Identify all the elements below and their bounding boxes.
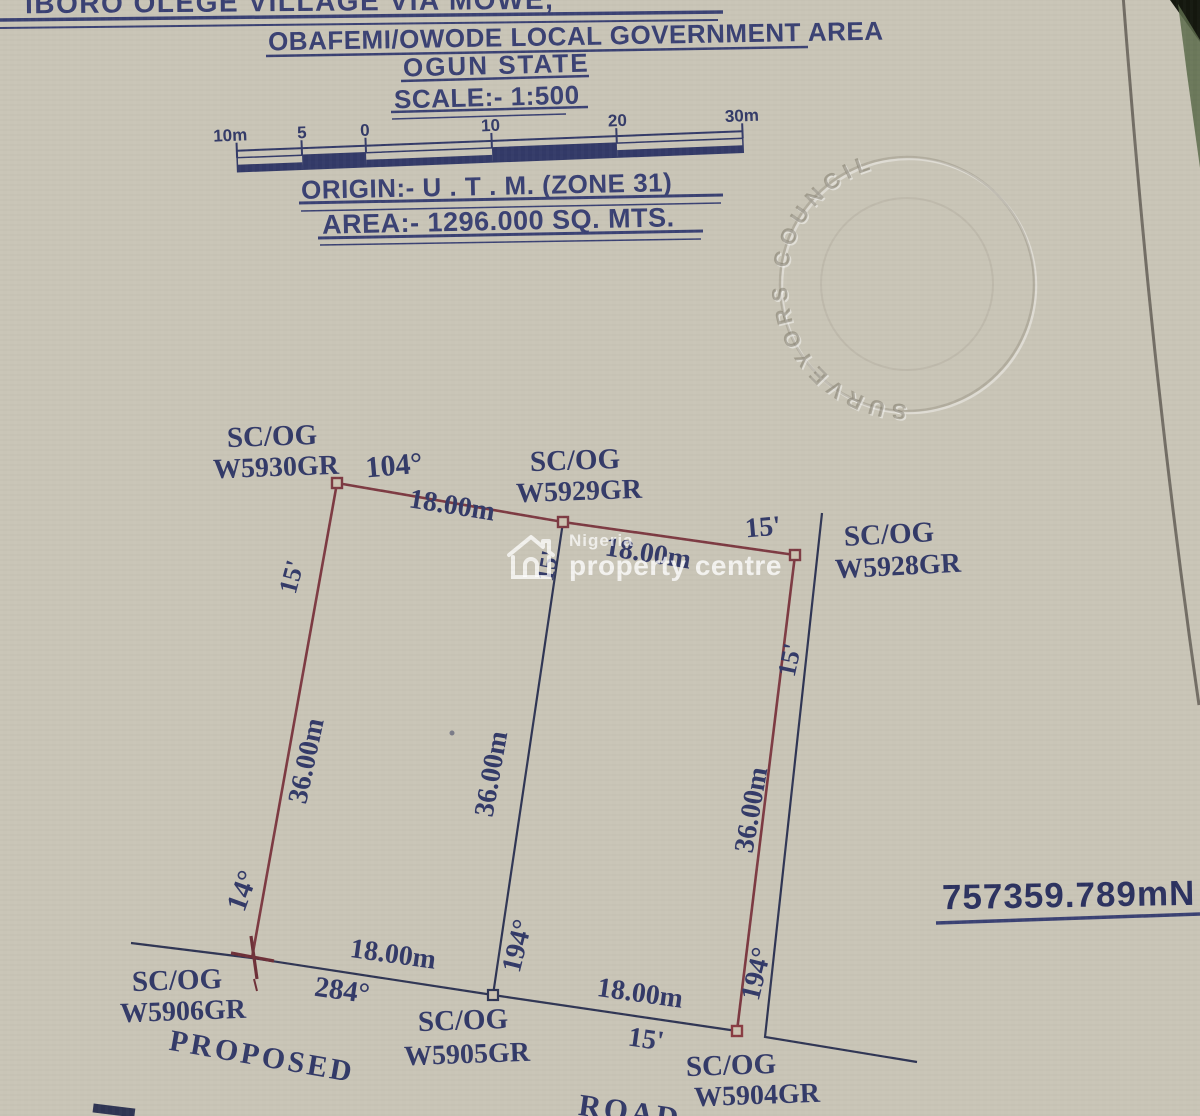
bearing-15min-bottom: 15'	[626, 1022, 666, 1059]
beacon-label-scog-w5906: SC/OG	[131, 963, 222, 999]
cutoff-bottom-mark	[93, 1103, 136, 1116]
beacon-w5905gr	[488, 990, 498, 1000]
angle-104: 104°	[364, 447, 424, 486]
beacon-label-w5928gr: W5928GR	[834, 548, 962, 587]
scale-tick-label-10: 10	[481, 116, 501, 136]
beacon-label-w5905gr: W5905GR	[403, 1037, 530, 1073]
survey-drawing-layer: 10m50102030m SURVEYORS COUNCIL SURVEYORS…	[0, 0, 1200, 1116]
beacon-label-w5929gr: W5929GR	[515, 474, 642, 510]
scale-bar-labels: 10m50102030m	[213, 106, 759, 146]
beacon-label-scog-w5928: SC/OG	[843, 516, 935, 554]
scale-bar: 10m50102030m	[213, 106, 760, 173]
survey-plan-document: 10m50102030m SURVEYORS COUNCIL SURVEYORS…	[0, 0, 1200, 1116]
svg-text:SURVEYORS COUNCIL: SURVEYORS COUNCIL	[767, 149, 908, 425]
beacon-w5929gr	[558, 517, 568, 527]
scale-tick-label-20: 20	[608, 111, 628, 131]
bearing-15min-mid: 15'	[533, 549, 565, 584]
beacon-label-scog-w5929: SC/OG	[529, 443, 620, 479]
beacon-label-w5906gr: W5906GR	[119, 994, 246, 1030]
northing-coordinate-label: 757359.789mN	[942, 874, 1196, 918]
paper-edge-line	[1123, 0, 1199, 705]
plot-lines-dark	[131, 513, 917, 1062]
bearing-15min-top: 15'	[744, 511, 782, 546]
beacon-label-scog-w5930: SC/OG	[226, 419, 317, 455]
beacon-label-scog-w5905: SC/OG	[417, 1003, 508, 1039]
seal-text: SURVEYORS COUNCIL	[767, 149, 908, 425]
scale-tick-label-30m: 30m	[725, 106, 760, 126]
beacon-label-w5930gr: W5930GR	[212, 450, 339, 486]
ink-speck	[450, 731, 455, 736]
beacon-label-w5904gr: W5904GR	[693, 1078, 820, 1114]
beacon-w5928gr	[790, 550, 800, 560]
scale-tick-label-10m: 10m	[213, 125, 248, 145]
beacon-w5904gr	[732, 1026, 742, 1036]
scale-tick-label-0: 0	[360, 121, 370, 140]
surveyors-seal: SURVEYORS COUNCIL SURVEYORS COUNCIL	[767, 149, 1036, 426]
beacon-w5906gr	[231, 936, 274, 991]
beacon-label-scog-w5904: SC/OG	[685, 1048, 776, 1084]
scale-tick-label-5: 5	[297, 123, 307, 142]
